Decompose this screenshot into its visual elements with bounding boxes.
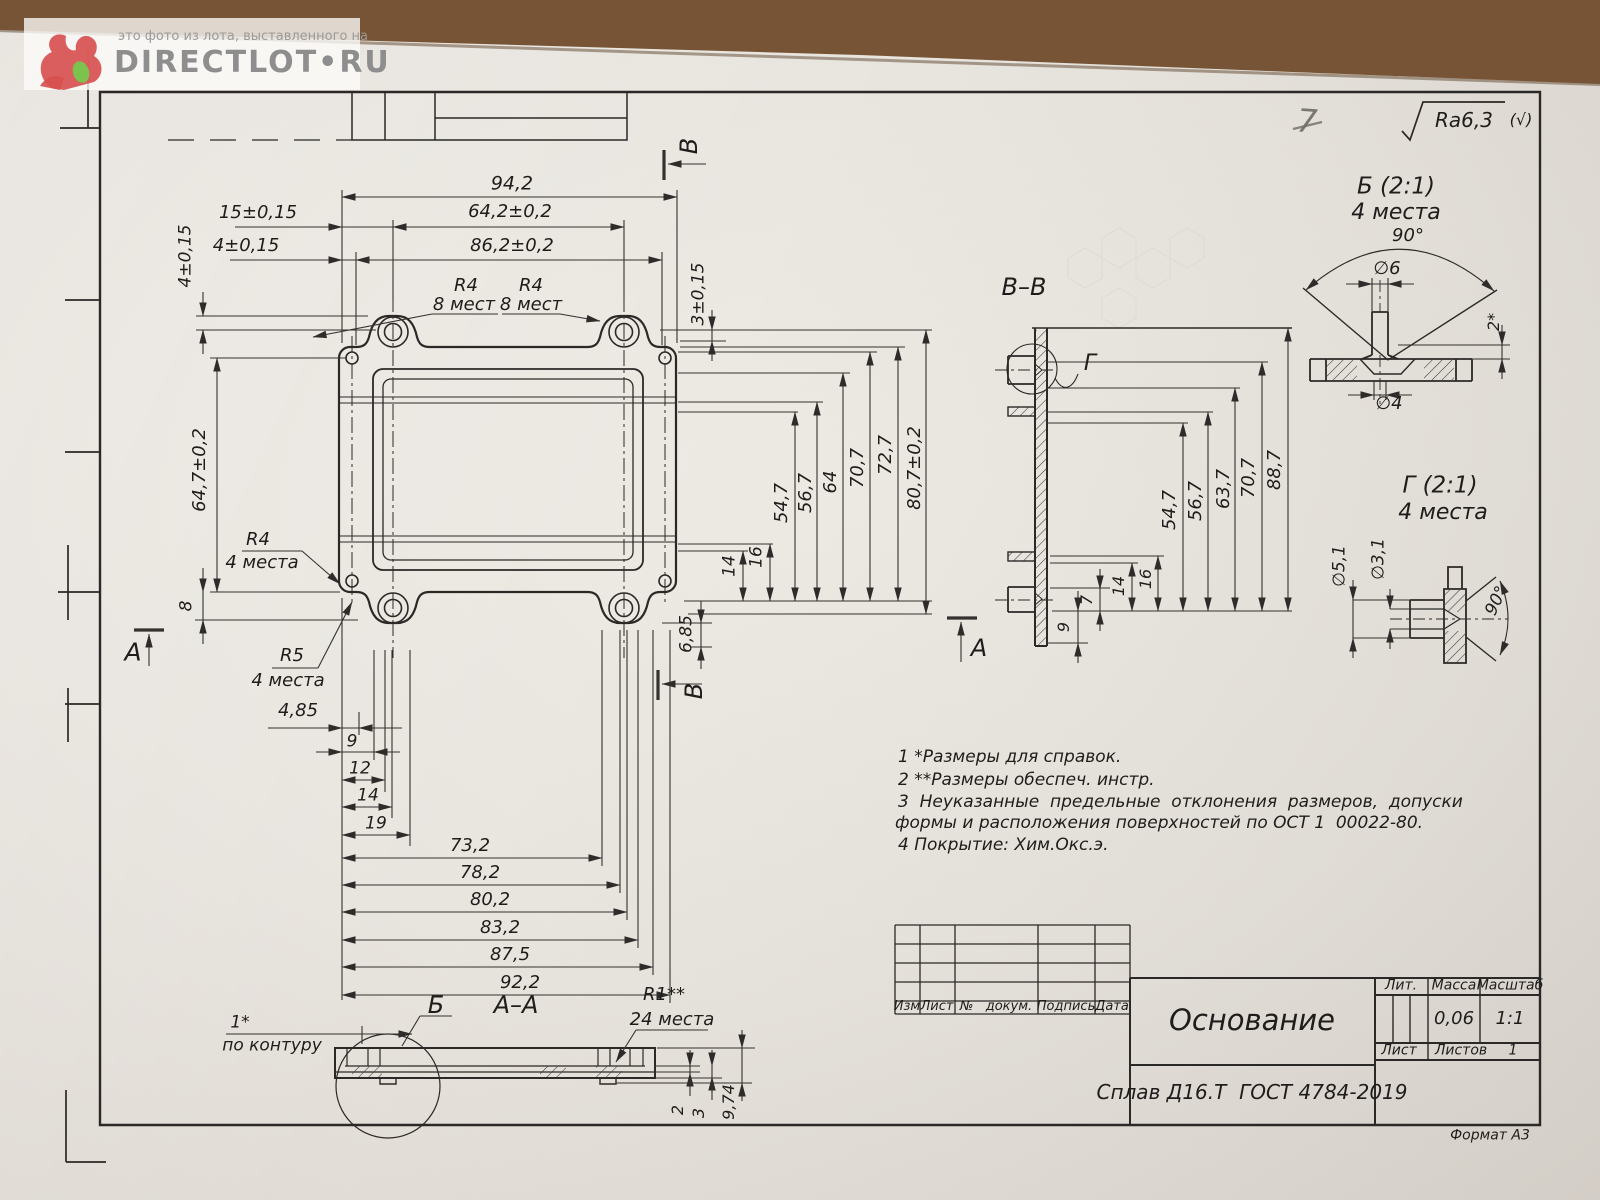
callout-b: Б	[428, 993, 444, 1017]
radius-r1: R1**	[643, 986, 685, 1004]
part-name: Основание	[1169, 1005, 1335, 1037]
detail-g-qty: 4 места	[1398, 502, 1488, 524]
roughness-value: Ra6,3	[1435, 110, 1493, 130]
photographed-blueprint: 94,215±0,1564,2±0,24±0,1586,2±0,2R48 мес…	[0, 0, 1600, 1200]
dim-4-left: 4±0,15	[178, 225, 195, 288]
dim-9: 9	[347, 734, 358, 751]
dim-54-7-vv: 54,7	[1161, 490, 1179, 530]
title-scale-value: 1:1	[1496, 1009, 1525, 1029]
detail-g-dia31: ∅3,1	[1371, 538, 1388, 580]
section-mark-a-vv: А	[971, 636, 987, 660]
watermark-caption: это фото из лота, выставленного на	[118, 30, 368, 44]
roughness-suffix: (√)	[1510, 112, 1533, 128]
dim-54-7: 54,7	[773, 483, 791, 523]
dim-64: 64	[822, 471, 840, 494]
dim-70-7: 70,7	[849, 448, 867, 488]
note-line-2: 2 **Размеры обеспеч. инстр.	[898, 771, 1155, 790]
title-mass-label: Масса	[1432, 978, 1477, 993]
dim-4-top: 4±0,15	[213, 237, 280, 255]
radius-r1-qty: 24 места	[630, 1011, 715, 1029]
dim-88-7-vv: 88,7	[1266, 450, 1284, 490]
revision-col-podpis: Подпись	[1037, 1000, 1095, 1014]
section-title-v-v: В–В	[1002, 275, 1047, 299]
dim-56-7-vv: 56,7	[1187, 481, 1205, 521]
detail-g-dia51: ∅5,1	[1332, 545, 1349, 587]
dim-72-7: 72,7	[877, 435, 895, 475]
title-sheet-label: Лист	[1381, 1043, 1416, 1058]
dim-4-85: 4,85	[278, 702, 318, 720]
detail-b-dia4: ∅4	[1375, 395, 1402, 413]
dim-87-5: 87,5	[490, 946, 530, 964]
section-mark-b-bottom: В	[682, 683, 706, 699]
dim-14-vv: 14	[1111, 576, 1127, 596]
detail-b-2star: 2*	[1486, 313, 1502, 331]
detail-g-title: Г (2:1)	[1402, 475, 1477, 498]
material-spec: Сплав Д16.Т ГОСТ 4784-2019	[1096, 1081, 1407, 1103]
dim-14-right: 14	[722, 555, 739, 577]
note-line-4: формы и расположения поверхностей по ОСТ…	[895, 814, 1423, 833]
directlot-squirrel-logo-icon	[34, 26, 108, 96]
dim-8: 8	[179, 601, 196, 612]
section-title-a-a: А–А	[494, 993, 539, 1017]
title-mass-value: 0,06	[1434, 1009, 1474, 1029]
dim-94-2: 94,2	[491, 175, 533, 194]
detail-g-angle: 90°	[1483, 584, 1511, 619]
revision-col-data: Дата	[1095, 1000, 1129, 1014]
revision-col-list: Лист	[921, 1000, 954, 1014]
dim-2-aa: 2	[670, 1105, 686, 1115]
revision-col-ndokum: № докум.	[960, 1000, 1032, 1014]
dim-83-2: 83,2	[480, 919, 520, 937]
annotation-labels: 94,215±0,1564,2±0,24±0,1586,2±0,2R48 мес…	[0, 0, 1600, 1200]
revision-col-izm: Изм	[894, 1000, 920, 1014]
ref-1-star: 1*	[230, 1015, 249, 1032]
title-sheets-label: Листов	[1435, 1043, 1487, 1058]
format-label: Формат А3	[1450, 1128, 1530, 1143]
section-mark-b-top: В	[677, 138, 701, 154]
detail-b-qty: 4 места	[1351, 202, 1441, 224]
dim-70-7-vv: 70,7	[1240, 458, 1258, 498]
dim-73-2: 73,2	[450, 837, 490, 855]
detail-b-dia6: ∅6	[1373, 260, 1400, 278]
note-line-1: 1 *Размеры для справок.	[898, 748, 1121, 767]
dim-6-85: 6,85	[679, 615, 696, 653]
title-sheets-value: 1	[1509, 1043, 1518, 1058]
pencil-mark: 7	[1296, 104, 1319, 137]
dim-3-aa: 3	[691, 1108, 707, 1118]
dim-16-right: 16	[749, 546, 766, 568]
title-scale-label: Масштаб	[1477, 978, 1544, 993]
radius-r4-top-1: R4	[454, 277, 478, 295]
note-line-3: 3 Неуказанные предельные отклонения разм…	[898, 793, 1463, 812]
watermark-brand: DIRECTLOT•RU	[114, 46, 391, 79]
radius-r4-left: R4	[246, 531, 270, 549]
dim-14-bottom: 14	[357, 788, 379, 805]
radius-r4-left-qty: 4 места	[225, 554, 298, 572]
dim-64-2: 64,2±0,2	[468, 203, 552, 221]
detail-b-angle: 90°	[1392, 227, 1424, 245]
dim-92-2: 92,2	[500, 974, 540, 992]
radius-r4-top-1-qty: 8 мест	[433, 296, 495, 314]
dim-9-74: 9,74	[721, 1084, 737, 1120]
dim-64-7: 64,7±0,2	[191, 428, 209, 512]
section-mark-a-left: А	[124, 640, 141, 665]
dim-12: 12	[349, 761, 371, 778]
radius-r4-top-2-qty: 8 мест	[500, 296, 562, 314]
title-lit-label: Лит.	[1385, 978, 1417, 993]
callout-g: Г	[1084, 353, 1096, 375]
dim-56-7: 56,7	[797, 473, 815, 513]
dim-19: 19	[365, 816, 387, 833]
dim-63-7-vv: 63,7	[1215, 469, 1233, 509]
dim-3-right: 3±0,15	[691, 263, 708, 326]
dim-78-2: 78,2	[460, 864, 500, 882]
dim-7-vv: 7	[1079, 595, 1095, 605]
dim-9-vv: 9	[1056, 622, 1072, 632]
ref-contour: по контуру	[222, 1038, 322, 1055]
detail-b-title: Б (2:1)	[1357, 176, 1435, 199]
dim-80-7: 80,7±0,2	[906, 426, 924, 510]
radius-r4-top-2: R4	[519, 277, 543, 295]
dim-16-vv: 16	[1138, 569, 1154, 589]
radius-r5-qty: 4 места	[251, 672, 324, 690]
dim-86-2: 86,2±0,2	[470, 237, 554, 255]
dim-15: 15±0,15	[219, 204, 297, 222]
note-line-5: 4 Покрытие: Хим.Окс.э.	[898, 836, 1108, 855]
radius-r5: R5	[280, 647, 304, 665]
dim-80-2: 80,2	[470, 891, 510, 909]
